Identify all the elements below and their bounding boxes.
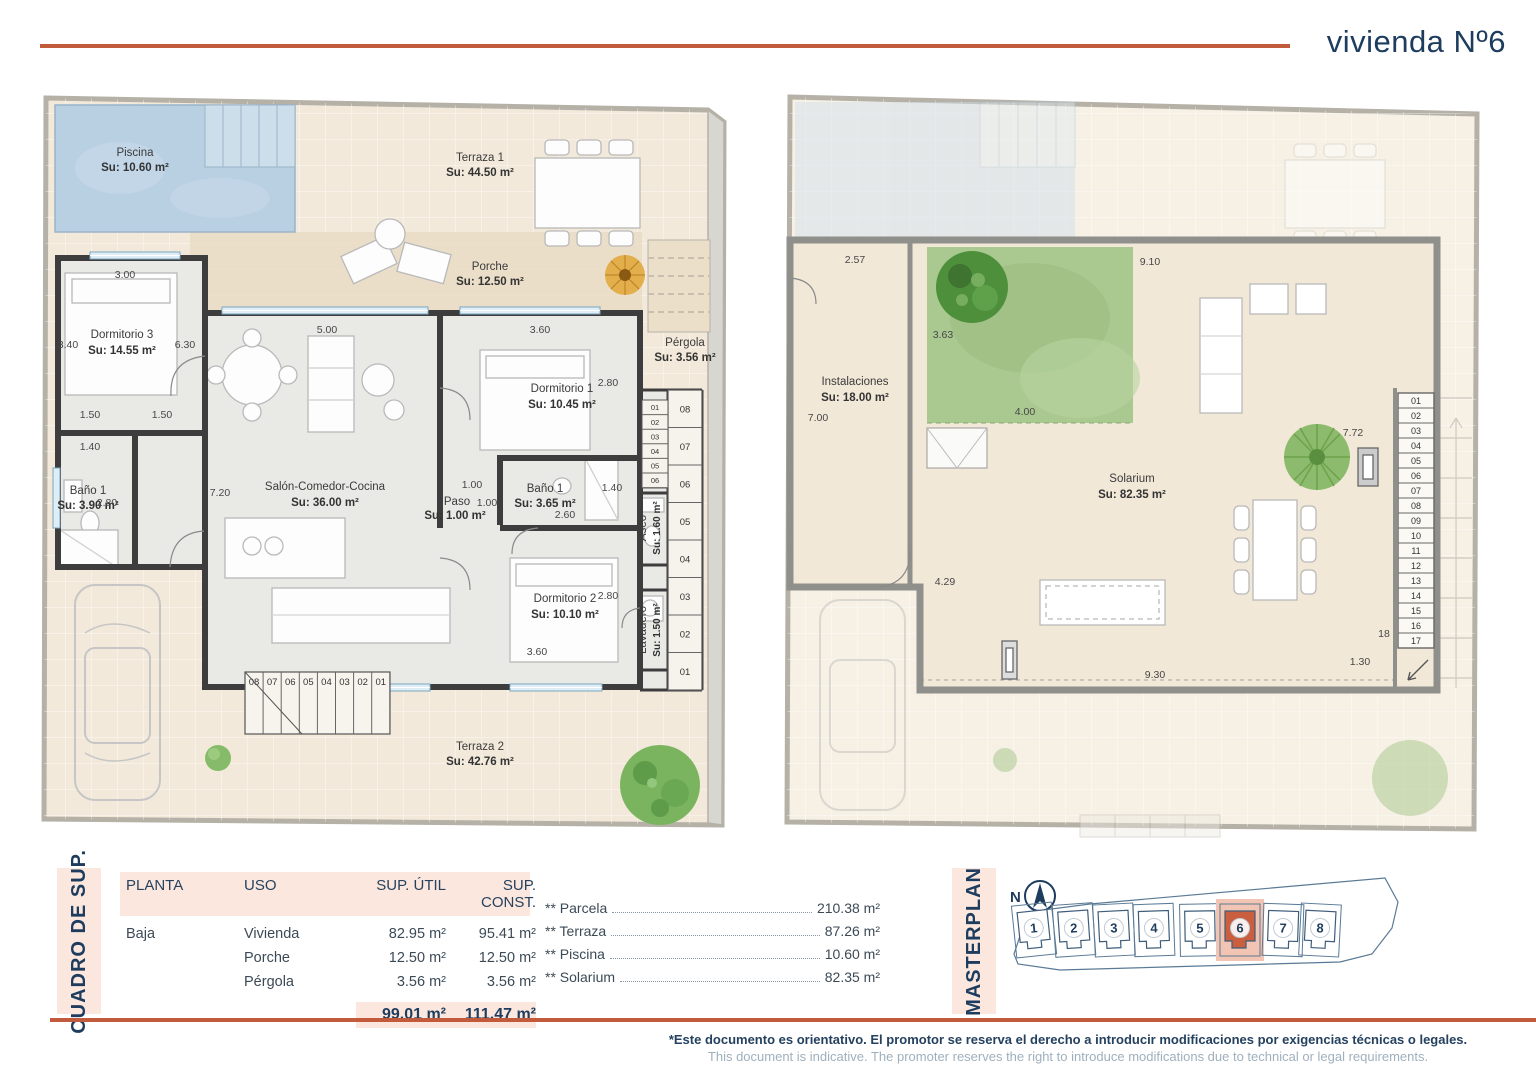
svg-text:3.40: 3.40 <box>58 339 79 351</box>
svg-text:7.20: 7.20 <box>210 487 231 499</box>
svg-text:N: N <box>1010 889 1021 906</box>
summary-item: ** Parcela210.38 m² <box>545 900 880 916</box>
svg-text:7.72: 7.72 <box>1343 427 1364 439</box>
svg-text:Su: 10.60 m²: Su: 10.60 m² <box>101 162 169 174</box>
svg-text:1.40: 1.40 <box>602 482 623 494</box>
room-label-dormitorio2: Dormitorio 2 <box>534 593 597 605</box>
svg-text:06: 06 <box>680 479 691 490</box>
page-title: vivienda Nº6 <box>1327 24 1506 60</box>
svg-text:03: 03 <box>339 677 350 688</box>
room-label-instalaciones: Instalaciones <box>821 376 888 388</box>
svg-text:Su: 12.50 m²: Su: 12.50 m² <box>456 276 524 288</box>
footer-accent-line <box>50 1018 1536 1022</box>
masterplan-unit-1: 1 <box>1011 902 1056 958</box>
svg-text:8: 8 <box>1316 920 1324 935</box>
svg-text:01: 01 <box>651 403 659 412</box>
room-label-terraza2: Terraza 2 <box>456 741 504 753</box>
svg-text:4.29: 4.29 <box>935 576 956 588</box>
masterplan-unit-6: 6 <box>1216 899 1264 961</box>
svg-text:02: 02 <box>1411 411 1421 421</box>
room-label-aseo: Aseo <box>637 515 649 541</box>
brochure-page: vivienda Nº6 <box>0 0 1536 1086</box>
svg-text:18: 18 <box>1378 628 1390 640</box>
plan-roof-floor: 0102030405060708091011121314151617 Insta… <box>780 88 1500 845</box>
svg-text:1.40: 1.40 <box>80 441 101 453</box>
svg-text:12: 12 <box>1411 561 1421 571</box>
svg-text:14: 14 <box>1411 591 1421 601</box>
masterplan-map: N 12345678 <box>1000 862 1430 1017</box>
room-label-piscina: Piscina <box>116 147 154 159</box>
svg-text:07: 07 <box>680 442 691 453</box>
svg-text:15: 15 <box>1411 606 1421 616</box>
svg-text:02: 02 <box>680 629 691 640</box>
svg-text:1.30: 1.30 <box>1350 656 1371 668</box>
room-label-solarium: Solarium <box>1109 473 1154 485</box>
svg-text:04: 04 <box>1411 441 1421 451</box>
svg-text:05: 05 <box>651 462 659 471</box>
svg-text:4.00: 4.00 <box>1015 406 1036 418</box>
svg-text:1.00: 1.00 <box>462 479 483 491</box>
svg-text:7.00: 7.00 <box>808 412 829 424</box>
masterplan-unit-2: 2 <box>1052 903 1096 958</box>
svg-text:06: 06 <box>651 476 659 485</box>
svg-text:2.57: 2.57 <box>845 254 866 266</box>
svg-text:5: 5 <box>1196 920 1203 935</box>
svg-text:02: 02 <box>357 677 368 688</box>
svg-text:Su: 42.76 m²: Su: 42.76 m² <box>446 756 514 768</box>
pergola-area <box>648 240 710 332</box>
svg-text:04: 04 <box>321 677 332 688</box>
svg-text:Su: 14.55 m²: Su: 14.55 m² <box>88 345 156 357</box>
summary-item: ** Terraza87.26 m² <box>545 923 880 939</box>
svg-text:01: 01 <box>680 667 691 678</box>
svg-text:Su: 1.00 m²: Su: 1.00 m² <box>424 510 486 522</box>
svg-text:Su: 44.50 m²: Su: 44.50 m² <box>446 167 514 179</box>
table-total-row: 99.01 m² 111.47 m² <box>120 1000 530 1030</box>
masterplan-unit-7: 7 <box>1262 903 1304 956</box>
north-compass-icon: N <box>1010 881 1055 911</box>
svg-text:4: 4 <box>1150 920 1159 935</box>
tree-icon <box>1284 424 1350 490</box>
svg-text:Su: 82.35 m²: Su: 82.35 m² <box>1098 489 1166 501</box>
svg-text:01: 01 <box>1411 396 1421 406</box>
svg-text:2.80: 2.80 <box>97 497 118 509</box>
svg-text:03: 03 <box>1411 426 1421 436</box>
disclaimer-en: This document is indicative. The promote… <box>600 1049 1536 1064</box>
svg-text:13: 13 <box>1411 576 1421 586</box>
table-row: Porche12.50 m²12.50 m² <box>120 946 530 970</box>
svg-text:1.50: 1.50 <box>152 409 173 421</box>
masterplan-unit-8: 8 <box>1299 903 1342 957</box>
svg-text:3.00: 3.00 <box>115 269 136 281</box>
svg-text:08: 08 <box>1411 501 1421 511</box>
summary-list: ** Parcela210.38 m² ** Terraza87.26 m² *… <box>545 900 880 992</box>
svg-text:9.10: 9.10 <box>1140 256 1161 268</box>
pool <box>55 105 295 232</box>
svg-text:2.80: 2.80 <box>598 590 619 602</box>
svg-text:02: 02 <box>651 418 659 427</box>
svg-text:1.00: 1.00 <box>477 497 498 509</box>
svg-text:17: 17 <box>1411 636 1421 646</box>
svg-text:04: 04 <box>680 554 691 565</box>
summary-item: ** Piscina10.60 m² <box>545 946 880 962</box>
masterplan-unit-5: 5 <box>1180 904 1221 957</box>
masterplan-tag: MASTERPLAN <box>952 868 996 1014</box>
disclaimer-es: *Este documento es orientativo. El promo… <box>600 1032 1536 1047</box>
svg-text:16: 16 <box>1411 621 1421 631</box>
room-label-porche: Porche <box>472 261 508 273</box>
svg-text:06: 06 <box>285 677 296 688</box>
neighbor-wall <box>708 110 724 825</box>
svg-text:01: 01 <box>375 677 386 688</box>
room-label-dormitorio3: Dormitorio 3 <box>91 329 154 341</box>
svg-text:Su: 10.45 m²: Su: 10.45 m² <box>528 399 596 411</box>
svg-text:Su: 1.50 m²: Su: 1.50 m² <box>652 603 663 657</box>
room-label-salon: Salón-Comedor-Cocina <box>265 481 386 493</box>
svg-text:3.60: 3.60 <box>530 324 551 336</box>
svg-text:3: 3 <box>1110 920 1118 935</box>
svg-text:03: 03 <box>651 432 659 441</box>
skylight <box>927 428 987 468</box>
masterplan-unit-3: 3 <box>1093 903 1136 957</box>
svg-text:03: 03 <box>680 592 691 603</box>
plan-ground-floor: 0807060504030201 010203040506 0807060504… <box>40 88 740 845</box>
room-label-terraza1: Terraza 1 <box>456 152 504 164</box>
svg-text:1: 1 <box>1029 920 1038 936</box>
room-label-pergola: Pérgola <box>665 337 705 349</box>
green-roof <box>927 247 1140 423</box>
svg-text:05: 05 <box>303 677 314 688</box>
svg-text:3.63: 3.63 <box>933 329 954 341</box>
svg-text:1.50: 1.50 <box>80 409 101 421</box>
masterplan-unit-4: 4 <box>1133 903 1175 956</box>
room-label-bano1b: Baño 1 <box>527 483 563 495</box>
room-label-paso: Paso <box>444 496 470 508</box>
table-header: PLANTA USO SUP. ÚTIL SUP. CONST. <box>120 872 530 916</box>
svg-text:08: 08 <box>680 404 691 415</box>
cuadro-sup-tag: CUADRO DE SUP. <box>57 868 101 1014</box>
svg-text:5.00: 5.00 <box>317 324 338 336</box>
svg-text:06: 06 <box>1411 471 1421 481</box>
svg-text:3.60: 3.60 <box>527 646 548 658</box>
svg-text:10: 10 <box>1411 531 1421 541</box>
svg-text:07: 07 <box>1411 486 1421 496</box>
svg-text:2.80: 2.80 <box>598 377 619 389</box>
svg-text:05: 05 <box>680 517 691 528</box>
table-row: BajaVivienda82.95 m²95.41 m² <box>120 922 530 946</box>
room-label-bano1a: Baño 1 <box>70 485 106 497</box>
surface-table: PLANTA USO SUP. ÚTIL SUP. CONST. BajaViv… <box>120 872 530 1030</box>
svg-text:09: 09 <box>1411 516 1421 526</box>
svg-text:Su: 10.10 m²: Su: 10.10 m² <box>531 609 599 621</box>
svg-text:6: 6 <box>1236 921 1243 936</box>
svg-text:05: 05 <box>1411 456 1421 466</box>
summary-item: ** Solarium82.35 m² <box>545 969 880 985</box>
svg-text:Su: 36.00 m²: Su: 36.00 m² <box>291 497 359 509</box>
svg-text:2: 2 <box>1070 920 1078 935</box>
svg-text:6.30: 6.30 <box>175 339 196 351</box>
room-label-dormitorio1: Dormitorio 1 <box>531 383 594 395</box>
svg-text:11: 11 <box>1411 546 1420 556</box>
svg-text:04: 04 <box>651 447 659 456</box>
header-accent-line <box>40 44 1290 48</box>
svg-text:Su: 18.00 m²: Su: 18.00 m² <box>821 392 889 404</box>
table-row: Pérgola3.56 m²3.56 m² <box>120 970 530 994</box>
svg-text:7: 7 <box>1279 920 1287 935</box>
svg-text:Su: 3.56 m²: Su: 3.56 m² <box>654 352 716 364</box>
svg-text:Su: 1.60 m²: Su: 1.60 m² <box>652 501 663 555</box>
svg-text:9.30: 9.30 <box>1145 669 1166 681</box>
svg-text:07: 07 <box>267 677 278 688</box>
svg-text:2.60: 2.60 <box>555 509 576 521</box>
room-label-lavadero: Lavadero <box>637 606 649 654</box>
